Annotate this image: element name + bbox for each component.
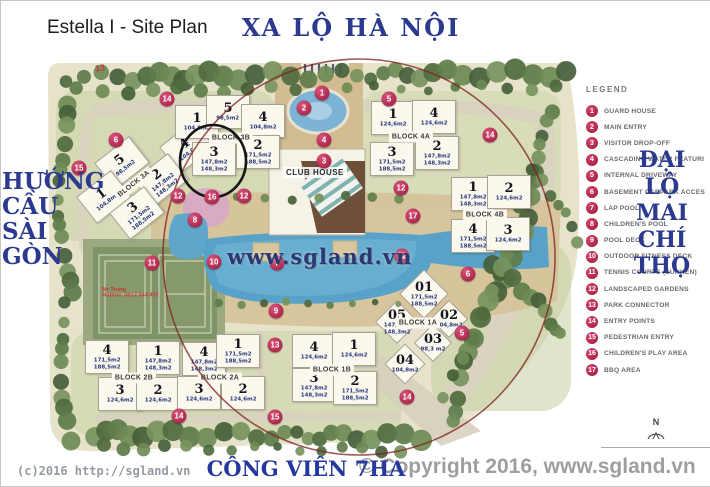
map-marker-14[interactable]: 14 <box>172 409 187 424</box>
legend-item-17[interactable]: 17BBQ AREA <box>586 362 710 378</box>
road-label-right: ĐẠI LỘ MAI CHÍ THỌ <box>623 147 701 280</box>
legend-item-14[interactable]: 14ENTRY POINTS <box>586 313 710 329</box>
footer-divider-line <box>601 447 710 448</box>
map-marker-13[interactable]: 13 <box>268 338 283 353</box>
map-marker-16[interactable]: 16 <box>205 190 220 205</box>
legend-marker-icon: 11 <box>586 267 598 279</box>
road-right-line: MAI <box>623 200 701 227</box>
legend-label: LANDSCAPED GARDENS <box>604 286 689 293</box>
legend-marker-icon: 6 <box>586 186 598 198</box>
legend-marker-icon: 10 <box>586 251 598 263</box>
legend-marker-icon: 13 <box>586 299 598 311</box>
legend-label: VISITOR DROP-OFF <box>604 140 670 147</box>
legend-item-2[interactable]: 2MAIN ENTRY <box>586 119 710 135</box>
legend-title: LEGEND <box>586 85 710 94</box>
map-marker-1[interactable]: 1 <box>315 86 330 101</box>
road-right-line: THỌ <box>623 253 701 280</box>
map-marker-9[interactable]: 9 <box>269 304 284 319</box>
map-marker-11[interactable]: 11 <box>145 256 160 271</box>
road-left-line: SÀI <box>2 219 94 244</box>
map-marker-6[interactable]: 6 <box>109 133 124 148</box>
legend-label: MAIN ENTRY <box>604 124 647 131</box>
legend-marker-icon: 5 <box>586 170 598 182</box>
watermark-text: www.sgland.vn <box>227 244 412 269</box>
map-marker-17[interactable]: 17 <box>406 209 421 224</box>
map-marker-3[interactable]: 3 <box>317 154 332 169</box>
compass-icon <box>644 427 668 441</box>
map-marker-12[interactable]: 12 <box>237 189 252 204</box>
park-label-bottom: CÔNG VIÊN 7HA <box>1 456 611 481</box>
road-left-line: GÒN <box>2 244 94 269</box>
legend-item-15[interactable]: 15PEDESTRIAN ENTRY <box>586 330 710 346</box>
legend-marker-icon: 2 <box>586 121 598 133</box>
road-left-line: CẦU <box>2 194 94 219</box>
map-marker-4[interactable]: 4 <box>317 133 332 148</box>
map-marker-2[interactable]: 2 <box>297 101 312 116</box>
legend-label: BBQ AREA <box>604 367 641 374</box>
legend-label: CHILDREN'S PLAY AREA <box>604 351 687 358</box>
legend-marker-icon: 14 <box>586 316 598 328</box>
legend-marker-icon: 1 <box>586 105 598 117</box>
legend-label: GUARD HOUSE <box>604 108 656 115</box>
legend-label: PARK CONNECTOR <box>604 302 670 309</box>
map-marker-8[interactable]: 8 <box>188 213 203 228</box>
map-marker-14[interactable]: 14 <box>160 92 175 107</box>
map-marker-5[interactable]: 5 <box>455 326 470 341</box>
legend-marker-icon: 9 <box>586 235 598 247</box>
legend-marker-icon: 7 <box>586 202 598 214</box>
legend-item-12[interactable]: 12LANDSCAPED GARDENS <box>586 281 710 297</box>
map-marker-14[interactable]: 14 <box>483 128 498 143</box>
map-marker-14[interactable]: 14 <box>400 390 415 405</box>
legend-marker-icon: 16 <box>586 348 598 360</box>
legend-marker-icon: 4 <box>586 154 598 166</box>
road-label-top: XA LỘ HÀ NỘI <box>1 13 701 42</box>
legend-marker-icon: 8 <box>586 218 598 230</box>
legend-label: ENTRY POINTS <box>604 318 655 325</box>
legend-item-16[interactable]: 16CHILDREN'S PLAY AREA <box>586 346 710 362</box>
map-marker-10[interactable]: 10 <box>207 255 222 270</box>
road-right-line: CHÍ <box>623 227 701 254</box>
road-right-line: LỘ <box>623 174 701 201</box>
road-label-left: HƯỚNG CẦU SÀI GÒN <box>2 169 94 269</box>
compass-north-label: N <box>644 417 668 427</box>
map-marker-6[interactable]: 6 <box>461 267 476 282</box>
legend-marker-icon: 15 <box>586 332 598 344</box>
legend-marker-icon: 17 <box>586 364 598 376</box>
legend-marker-icon: 3 <box>586 137 598 149</box>
map-marker-12[interactable]: 12 <box>394 181 409 196</box>
legend-label: PEDESTRIAN ENTRY <box>604 334 674 341</box>
legend-marker-icon: 12 <box>586 283 598 295</box>
map-marker-12[interactable]: 12 <box>171 189 186 204</box>
site-plan-page: 4104,8m2598,5m22147,8m2148,3m21104,8m231… <box>0 0 710 487</box>
road-right-line: ĐẠI <box>623 147 701 174</box>
map-marker-15[interactable]: 15 <box>268 410 283 425</box>
map-marker-5[interactable]: 5 <box>382 92 397 107</box>
compass: N <box>644 417 668 446</box>
legend-item-13[interactable]: 13PARK CONNECTOR <box>586 297 710 313</box>
road-left-line: HƯỚNG <box>2 169 94 194</box>
legend-item-1[interactable]: 1GUARD HOUSE <box>586 103 710 119</box>
